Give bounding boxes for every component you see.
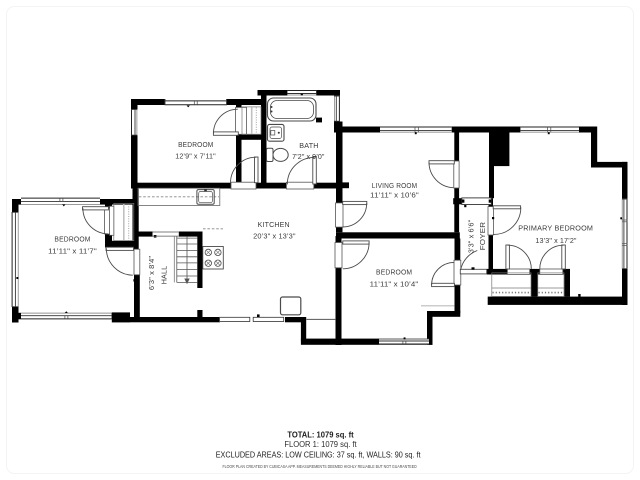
svg-text:6’3" x 8’4": 6’3" x 8’4" — [147, 256, 156, 290]
svg-text:11’11" x 10’4": 11’11" x 10’4" — [370, 279, 419, 288]
svg-text:PRIMARY BEDROOM: PRIMARY BEDROOM — [518, 223, 593, 232]
svg-text:TOTAL: 1079 sq. ft: TOTAL: 1079 sq. ft — [287, 429, 354, 439]
svg-text:20’3" x 13’3": 20’3" x 13’3" — [253, 232, 296, 241]
svg-text:FLOOR PLAN CREATED BY CUBICASA: FLOOR PLAN CREATED BY CUBICASA APP. MEAS… — [223, 464, 417, 469]
svg-text:EXCLUDED AREAS: LOW CEILING: 3: EXCLUDED AREAS: LOW CEILING: 37 sq. ft, … — [216, 449, 421, 459]
svg-text:FLOOR 1: 1079 sq. ft: FLOOR 1: 1079 sq. ft — [284, 439, 357, 449]
svg-text:12’9" x 7’11": 12’9" x 7’11" — [175, 152, 216, 161]
svg-text:FOYER: FOYER — [478, 221, 487, 250]
svg-text:KITCHEN: KITCHEN — [258, 220, 290, 229]
svg-text:HALL: HALL — [159, 266, 168, 285]
svg-text:BEDROOM: BEDROOM — [376, 267, 412, 276]
svg-text:11’11" x 11’7": 11’11" x 11’7" — [48, 247, 97, 256]
svg-text:13’3" x 17’2": 13’3" x 17’2" — [535, 236, 576, 245]
svg-text:BEDROOM: BEDROOM — [54, 235, 90, 244]
svg-text:BATH: BATH — [299, 141, 318, 150]
svg-text:BEDROOM: BEDROOM — [178, 140, 213, 149]
svg-text:3’3" x 6’6": 3’3" x 6’6" — [466, 219, 475, 253]
svg-text:LIVING ROOM: LIVING ROOM — [372, 181, 417, 190]
svg-text:11’11" x 10’6": 11’11" x 10’6" — [370, 191, 419, 200]
svg-text:7’2" x 9’0": 7’2" x 9’0" — [292, 152, 325, 161]
